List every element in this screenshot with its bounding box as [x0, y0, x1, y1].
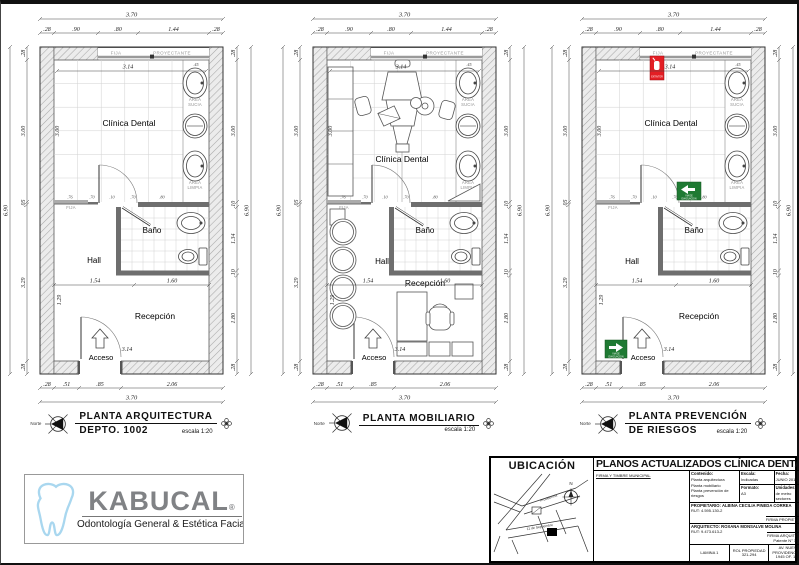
label: Clínica Dental: [376, 154, 429, 164]
label: .28: [21, 50, 27, 58]
label: 3.00: [597, 126, 603, 138]
bath-door: [664, 207, 693, 227]
acceso-door: [351, 317, 396, 375]
evacuation-sign: VIA DEEVACUACION: [605, 340, 627, 358]
label: 3.14: [121, 346, 133, 353]
scale-label: escala 1:20: [445, 427, 476, 433]
label: 3.70: [398, 12, 411, 19]
label: 3.70: [667, 395, 680, 402]
label: 1.54: [90, 278, 101, 285]
label: 1.29: [330, 295, 336, 306]
scale-label: escala 1:20: [717, 429, 748, 435]
label: .28: [773, 50, 779, 58]
plan-title: PLANTA MOBILIARIO escala 1:20: [359, 413, 479, 434]
label: FIJA: [111, 51, 122, 56]
plan-title-row: Norte PLANTA MOBILIARIO escala 1:20: [273, 411, 535, 435]
label: .76: [609, 195, 615, 200]
label: 1.34: [230, 234, 237, 245]
map-location-marker: [547, 528, 557, 536]
round-fixture-icon: [725, 114, 749, 138]
bath-sink-icon: [719, 213, 747, 234]
location-map: N Providencia 11 de Septiembre: [492, 472, 592, 556]
flower-marker-icon: [755, 418, 766, 429]
label: .28: [585, 382, 593, 388]
plan-arquitectura: FIJA PROYECTANTE FIJA AREASUCIA AREALIMP…: [0, 4, 262, 462]
map-north-icon: N: [563, 481, 580, 506]
label: 3.29: [294, 278, 300, 290]
label: .28: [294, 364, 300, 372]
lamina-cell: LAMINA 1: [690, 545, 730, 561]
plan-prevencion: FIJA PROYECTANTE FIJA AREASUCIA AREALIMP…: [542, 4, 799, 462]
arquitecto-cell: ARQUITECTO: ROXANA MONSALVE MOLINA RUT: …: [690, 524, 799, 545]
label: .10: [504, 201, 510, 209]
label: .51: [63, 382, 71, 388]
brand-tagline: Odontología General & Estética Facial: [77, 519, 244, 530]
reception-furniture: [397, 284, 473, 356]
label: PROYECTANTE: [153, 51, 191, 56]
plan-mobiliario: FIJA PROYECTANTE FIJA AREASUCIA AREALIMP…: [273, 4, 535, 462]
north-compass-icon: [595, 412, 621, 436]
spittoon-icon: [411, 98, 422, 109]
label: .10: [231, 269, 237, 277]
scale-label: escala 1:20: [182, 429, 213, 435]
label: .10: [504, 269, 510, 277]
acceso-arrow-icon: [634, 329, 650, 348]
fire-extinguisher-sign: EXTINTOR: [650, 56, 664, 80]
label: .70: [672, 195, 678, 200]
label: .80: [114, 27, 122, 33]
label: .28: [231, 50, 237, 58]
label: PROYECTANTE: [426, 51, 464, 56]
label: 1.60: [440, 279, 451, 285]
area-limpia-sink-icon: [456, 151, 480, 181]
label: .28: [212, 27, 220, 33]
label: .90: [345, 27, 353, 33]
label: 3.14: [394, 346, 406, 353]
label: EVACUACION: [681, 197, 696, 200]
label: 3.14: [664, 64, 676, 71]
label: .76: [67, 195, 73, 200]
label: 3.00: [563, 126, 569, 138]
waiting-chairs: [330, 209, 356, 329]
label: .10: [231, 201, 237, 209]
sheet-title: PLANOS ACTUALIZADOS CLÍNICA DENTAL: [594, 458, 799, 471]
label: 6.90: [3, 204, 10, 216]
bottom-row: LAMINA 1 ROL PROPIEDAD 321-294 AV. NUEVA…: [690, 545, 799, 561]
label: 3.00: [773, 126, 779, 138]
label: Baño: [685, 226, 704, 235]
floorplan-svg-arquitectura: FIJA PROYECTANTE FIJA AREASUCIA AREALIMP…: [0, 4, 262, 406]
north-compass-icon: [45, 412, 71, 436]
label: 3.14: [122, 64, 134, 71]
flower-marker-icon: [483, 418, 494, 429]
label: .10: [773, 269, 779, 277]
label: .45: [466, 62, 471, 67]
label: 1.80: [773, 313, 779, 324]
label: .05: [21, 200, 27, 208]
label: 6.90: [517, 204, 524, 216]
label: 3.00: [328, 126, 334, 138]
label: 1.60: [167, 279, 178, 285]
label: .10: [109, 195, 115, 200]
label: FIJA: [384, 51, 395, 56]
label: 1.44: [441, 26, 452, 33]
label: 2.06: [440, 382, 451, 388]
hall-window: [54, 200, 88, 204]
label: 1.34: [503, 234, 510, 245]
label: 6.90: [244, 204, 251, 216]
brand-name: KABUCAL®: [88, 488, 235, 515]
title-block-right: PLANOS ACTUALIZADOS CLÍNICA DENTAL FIRMA…: [594, 458, 799, 561]
label: .28: [21, 364, 27, 372]
label: .28: [485, 27, 493, 33]
label: Hall: [625, 257, 639, 266]
label: Acceso: [89, 353, 114, 362]
info-cells: Contenido: Planta arquitectura Planta mo…: [690, 471, 799, 561]
label: .70: [362, 195, 368, 200]
label: 1.34: [772, 234, 779, 245]
label: 3.00: [21, 126, 27, 138]
plan-title-line2: DE RIESGOS: [629, 425, 697, 436]
label: .05: [563, 200, 569, 208]
hall-window: [596, 200, 630, 204]
north-label: Norte: [314, 421, 325, 426]
label: LIMPIA: [188, 185, 203, 190]
plan-title-line2: DEPTO. 1002: [79, 425, 148, 436]
label: FIJA: [608, 205, 617, 210]
label: EXTINTOR: [651, 77, 663, 79]
plan-title-line1: PLANTA PREVENCIÓN: [625, 411, 752, 424]
label: .51: [605, 382, 613, 388]
round-fixture-icon: [183, 114, 207, 138]
label: SUCIA: [461, 102, 475, 107]
toilet-icon: [721, 248, 750, 265]
area-limpia-sink-icon: [725, 151, 749, 181]
rol-cell: ROL PROPIEDAD 321-294: [730, 545, 770, 561]
propietario-cell: PROPIETARIO: ALBINA CECILIA PINEDA CORRE…: [690, 503, 799, 524]
label: VIA DE: [612, 353, 620, 356]
label: .70: [89, 195, 95, 200]
label: .80: [656, 27, 664, 33]
label: .80: [432, 195, 438, 200]
svg-text:N: N: [569, 481, 572, 486]
label: 3.70: [398, 395, 411, 402]
label: 1.60: [709, 279, 720, 285]
clinic-floor-tiles: [54, 60, 183, 202]
plan-title-row: Norte PLANTA PREVENCIÓN DE RIESGOS escal…: [542, 411, 799, 436]
hall-window: [327, 200, 361, 204]
label: 6.90: [545, 204, 552, 216]
label: 3.00: [294, 126, 300, 138]
stool-icon: [354, 95, 372, 116]
area-sucia-sink-icon: [456, 68, 480, 98]
label: .45: [735, 62, 740, 67]
label: .80: [701, 195, 707, 200]
plan-title-row: Norte PLANTA ARQUITECTURA DEPTO. 1002 es…: [0, 411, 262, 436]
map-street-label: Providencia: [540, 493, 558, 503]
label: .70: [631, 195, 637, 200]
label: Clínica Dental: [103, 118, 156, 128]
label: 3.70: [667, 12, 680, 19]
label: SUCIA: [730, 102, 744, 107]
contenido-cell: Contenido: Planta arquitectura Planta mo…: [690, 471, 740, 502]
label: 3.29: [563, 278, 569, 290]
bath-door: [122, 207, 151, 227]
label: 2.06: [167, 382, 178, 388]
label: .85: [369, 382, 377, 388]
label: .28: [563, 364, 569, 372]
direccion-cell: AV. NUEVA PROVIDENCIA N° 1945 OF. 1620: [769, 545, 799, 561]
label: .90: [614, 27, 622, 33]
label: .85: [638, 382, 646, 388]
label: .80: [159, 195, 165, 200]
label: .51: [336, 382, 344, 388]
plan-title: PLANTA PREVENCIÓN DE RIESGOS escala 1:20: [625, 411, 752, 436]
label: 1.54: [363, 278, 374, 285]
evacuation-sign: VIA DEEVACUACION: [677, 182, 701, 200]
label: 3.14: [395, 64, 407, 71]
escala-cell: Escala: Indicadas: [740, 471, 775, 484]
label: 1.80: [231, 313, 237, 324]
label: PROYECTANTE: [695, 51, 733, 56]
logo-text: KABUCAL® Odontología General & Estética …: [77, 488, 244, 530]
label: 2.06: [709, 382, 720, 388]
logo-divider: [82, 516, 242, 517]
label: Clínica Dental: [645, 118, 698, 128]
label: .80: [387, 27, 395, 33]
title-block: UBICACIÓN N Providencia 11: [489, 456, 797, 563]
window-band: FIJA PROYECTANTE: [98, 48, 209, 60]
label: EVACUACION: [608, 355, 623, 358]
label: 1.44: [168, 26, 179, 33]
label: 3.29: [21, 278, 27, 290]
label: .28: [563, 50, 569, 58]
label: .10: [382, 195, 388, 200]
firma-municipal-cell: FIRMA Y TIMBRE MUNICIPAL: [594, 471, 690, 561]
label: .28: [294, 50, 300, 58]
north-compass-icon: [329, 411, 355, 435]
kabucal-logo: KABUCAL® Odontología General & Estética …: [24, 474, 244, 544]
label: 6.90: [786, 204, 793, 216]
label: FIJA: [66, 205, 75, 210]
label: 1.80: [504, 313, 510, 324]
label: .28: [316, 382, 324, 388]
label: .70: [403, 195, 409, 200]
label: .28: [231, 364, 237, 372]
window-band: FIJA PROYECTANTE: [371, 48, 482, 60]
label: Baño: [143, 226, 162, 235]
registered-mark: ®: [229, 503, 236, 512]
label: Recepción: [135, 311, 175, 321]
plan-title-line1: PLANTA MOBILIARIO: [359, 413, 479, 426]
label: Acceso: [362, 353, 387, 362]
label: Recepción: [679, 311, 719, 321]
north-label: Norte: [580, 421, 591, 426]
plan-title: PLANTA ARQUITECTURA DEPTO. 1002 escala 1…: [75, 411, 216, 436]
label: 3.00: [504, 126, 510, 138]
label: .76: [340, 195, 346, 200]
label: 1.29: [599, 295, 605, 306]
label: 3.70: [125, 12, 138, 19]
toilet-icon: [179, 248, 208, 265]
label: 3.00: [55, 126, 61, 138]
flower-marker-icon: [221, 418, 232, 429]
office-chair-icon: [426, 304, 454, 330]
label: Hall: [87, 256, 101, 265]
acceso-arrow-icon: [365, 329, 381, 348]
label: .85: [96, 382, 104, 388]
label: .10: [773, 201, 779, 209]
bath-sink-icon: [177, 213, 205, 234]
fecha-cell: Fecha: JUNIO 2014: [775, 471, 799, 484]
label: 1.54: [632, 278, 643, 285]
area-limpia-sink-icon: [183, 151, 207, 181]
label: 1.44: [710, 26, 721, 33]
label: .28: [773, 364, 779, 372]
label: .28: [585, 27, 593, 33]
label: SUCIA: [188, 102, 202, 107]
label: .05: [294, 200, 300, 208]
reception-desk: [397, 292, 427, 341]
toilet-icon: [452, 248, 481, 265]
round-fixture-icon: [456, 114, 480, 138]
label: .70: [130, 195, 136, 200]
label: .28: [504, 364, 510, 372]
label: .28: [43, 382, 51, 388]
area-sucia-sink-icon: [183, 68, 207, 98]
label: .28: [504, 50, 510, 58]
label: Acceso: [631, 353, 656, 362]
label: .28: [316, 27, 324, 33]
label: .45: [193, 62, 198, 67]
label: 1.29: [57, 295, 63, 306]
plan-title-line1: PLANTA ARQUITECTURA: [75, 411, 216, 424]
label: VIA DE: [685, 195, 693, 198]
label: 3.14: [663, 346, 675, 353]
ubicacion-title: UBICACIÓN: [509, 460, 576, 472]
bath-door: [395, 207, 424, 227]
floorplan-svg-prevencion: FIJA PROYECTANTE FIJA AREASUCIA AREALIMP…: [542, 4, 799, 406]
ubicacion-panel: UBICACIÓN N Providencia 11: [491, 458, 594, 561]
bath-sink-icon: [450, 213, 478, 234]
floorplan-svg-mobiliario: FIJA PROYECTANTE FIJA AREASUCIA AREALIMP…: [273, 4, 535, 406]
label: .10: [651, 195, 657, 200]
stool-icon: [438, 99, 456, 120]
clinic-floor-tiles: [596, 60, 725, 202]
label: 3.70: [125, 395, 138, 402]
label: Hall: [375, 257, 389, 266]
label: Baño: [416, 226, 435, 235]
label: FIJA: [653, 51, 664, 56]
label: LIMPIA: [730, 185, 745, 190]
unidades-cell: Unidades: de metro sectores: [775, 485, 799, 502]
label: 3.00: [231, 126, 237, 138]
label: .90: [72, 27, 80, 33]
north-label: Norte: [30, 421, 41, 426]
area-sucia-sink-icon: [725, 68, 749, 98]
label: 6.90: [276, 204, 283, 216]
formato-cell: Formato: A3: [740, 485, 775, 502]
label: .28: [43, 27, 51, 33]
label: .28: [754, 27, 762, 33]
acceso-arrow-icon: [92, 329, 108, 348]
acceso-door: [78, 317, 123, 375]
